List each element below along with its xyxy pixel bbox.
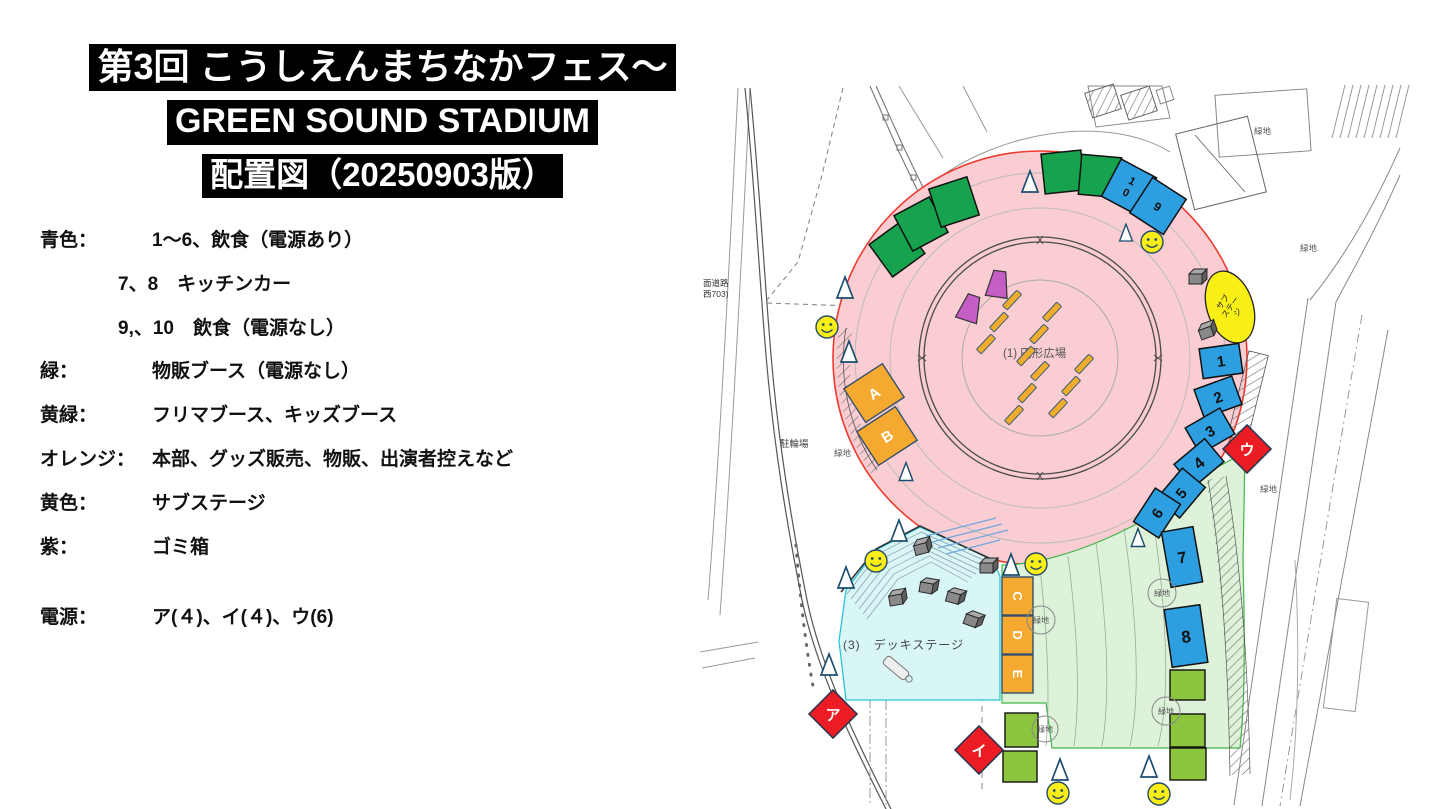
site-map: (1) 円形広場 (700, 0, 1440, 809)
legend-row-kitchen-car: 7、8 キッチンカー (40, 274, 680, 297)
booth-orange-D: D (1002, 616, 1033, 654)
svg-text:イ: イ (971, 743, 986, 760)
svg-text:ウ: ウ (1239, 442, 1254, 459)
legend-label: 電源： (40, 607, 152, 630)
road-label: 面道路 (703, 278, 729, 288)
legend-label: 青色： (40, 230, 152, 253)
legend-text: 物販ブース（電源なし） (152, 361, 360, 384)
svg-text:D: D (1010, 630, 1025, 639)
title-line-2: GREEN SOUND STADIUM (167, 100, 598, 145)
legend-text: 9,、10 飲食（電源なし） (118, 318, 345, 341)
page-title: 第3回 こうしえんまちなかフェス〜 GREEN SOUND STADIUM 配置… (70, 44, 695, 207)
legend-label: 緑： (40, 361, 152, 384)
legend-text: フリマブース、キッズブース (152, 405, 397, 428)
bicycle-parking-label: 駐輪場 (780, 438, 809, 450)
flyer-page: { "header": { "title_line1": "第3回 こうしえんま… (0, 0, 1440, 809)
yellowgreen-booth (1005, 713, 1038, 747)
green-space-label: 緑地 (1254, 126, 1272, 136)
green-space-label: 緑地 (834, 448, 852, 458)
legend-text: 1〜6、飲食（電源あり） (152, 230, 363, 253)
booth-orange-E: E (1002, 655, 1033, 693)
green-space-label: 緑地 (1260, 484, 1278, 494)
yellowgreen-booth (1170, 670, 1205, 700)
power-point-i: イ (955, 726, 1003, 774)
legend-text: サブステージ (152, 493, 266, 516)
legend-label: 黄緑： (40, 405, 152, 428)
svg-text:C: C (1010, 591, 1025, 601)
legend-label: 黄色： (40, 493, 152, 516)
svg-text:ア: ア (825, 707, 840, 724)
legend-text: 7、8 キッチンカー (118, 274, 291, 297)
legend-row-no-power-food: 9,、10 飲食（電源なし） (40, 318, 680, 341)
legend-label: オレンジ： (40, 449, 152, 472)
booth-blue-1: 1 (1199, 343, 1243, 378)
svg-text:緑地: 緑地 (1154, 588, 1170, 598)
svg-text:緑地: 緑地 (1158, 706, 1174, 716)
legend-row-green: 緑： 物販ブース（電源なし） (40, 361, 680, 384)
yellowgreen-booth (1170, 748, 1206, 780)
legend-text: ゴミ箱 (152, 537, 209, 560)
road-label: 西703) (703, 289, 729, 299)
yellowgreen-booth (1003, 751, 1037, 782)
booth-blue-8: 8 (1164, 605, 1208, 667)
legend-row-orange: オレンジ： 本部、グッズ販売、物販、出演者控えなど (40, 449, 680, 472)
legend-row-purple: 紫： ゴミ箱 (40, 537, 680, 560)
deck-stage-label: (3) デッキステージ (843, 637, 964, 652)
svg-text:E: E (1010, 670, 1025, 679)
legend-row-blue: 青色： 1〜6、飲食（電源あり） (40, 230, 680, 253)
svg-text:緑地: 緑地 (1037, 724, 1053, 734)
booth-orange-C: C (1002, 577, 1033, 615)
legend: 青色： 1〜6、飲食（電源あり） 7、8 キッチンカー 9,、10 飲食（電源な… (40, 230, 680, 651)
green-space-label: 緑地 (1300, 243, 1318, 253)
yellowgreen-booth (1170, 714, 1205, 747)
legend-row-yellow: 黄色： サブステージ (40, 493, 680, 516)
legend-label: 紫： (40, 537, 152, 560)
legend-text: 本部、グッズ販売、物販、出演者控えなど (152, 449, 513, 472)
legend-row-yellowgreen: 黄緑： フリマブース、キッズブース (40, 405, 680, 428)
legend-row-power: 電源： ア(４)、イ(４)、ウ(6) (40, 607, 680, 630)
title-line-1: 第3回 こうしえんまちなかフェス〜 (89, 44, 675, 91)
plaza-label: (1) 円形広場 (1003, 347, 1067, 360)
legend-text: ア(４)、イ(４)、ウ(6) (152, 607, 334, 630)
svg-text:緑地: 緑地 (1033, 615, 1049, 625)
title-line-3: 配置図（20250903版） (202, 154, 563, 198)
